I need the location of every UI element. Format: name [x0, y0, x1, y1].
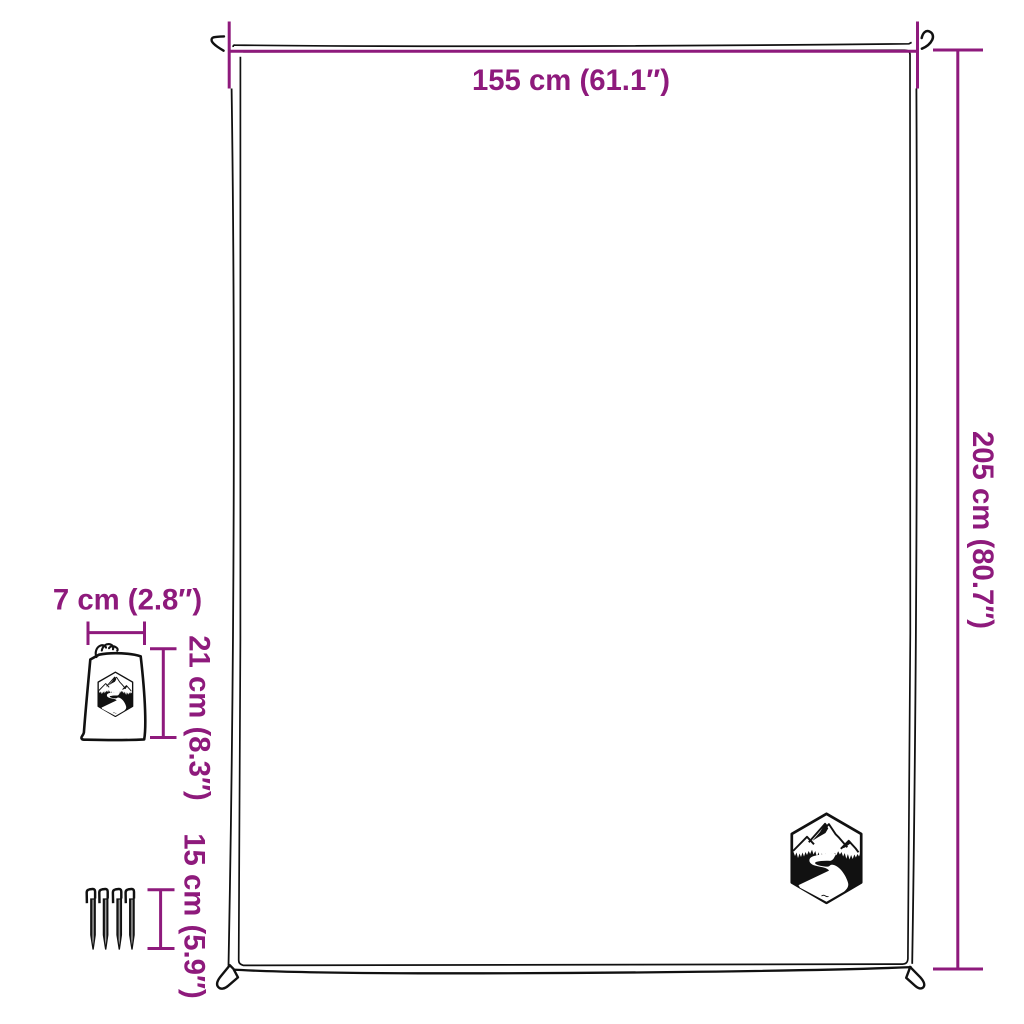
svg-text:15 cm (5.9″): 15 cm (5.9″)	[178, 833, 211, 998]
svg-text:21 cm (8.3″): 21 cm (8.3″)	[182, 635, 215, 800]
svg-text:7 cm (2.8″): 7 cm (2.8″)	[53, 584, 202, 617]
svg-text:155 cm (61.1″): 155 cm (61.1″)	[472, 64, 670, 97]
svg-text:205 cm (80.7″): 205 cm (80.7″)	[966, 431, 999, 629]
